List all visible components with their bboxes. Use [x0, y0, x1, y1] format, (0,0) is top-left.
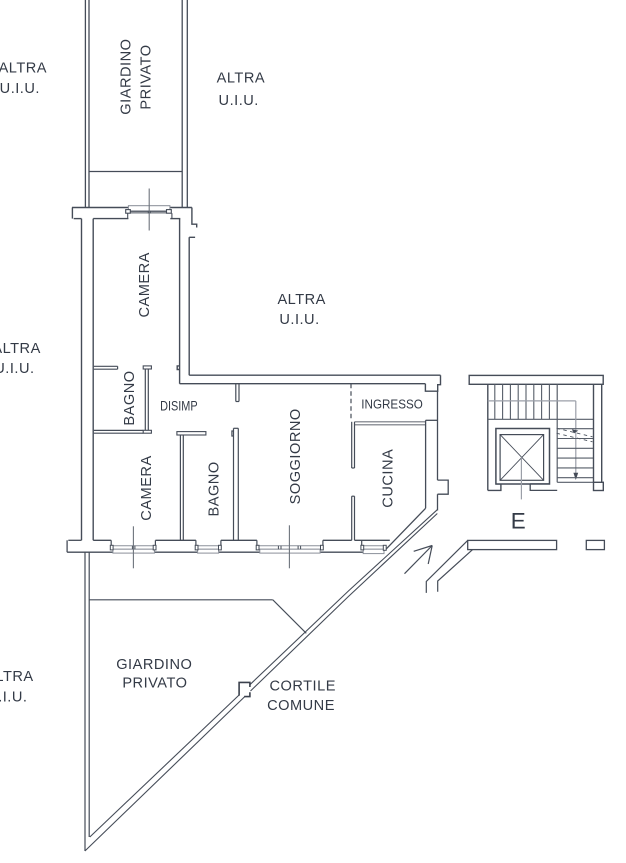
- svg-text:U.I.U.: U.I.U.: [279, 312, 319, 328]
- svg-text:INGRESSO: INGRESSO: [361, 398, 423, 412]
- svg-text:DISIMP: DISIMP: [160, 397, 198, 413]
- svg-text:GIARDINO: GIARDINO: [116, 657, 192, 673]
- svg-text:E: E: [511, 509, 526, 534]
- svg-text:ALTRA: ALTRA: [0, 60, 47, 76]
- svg-text:CORTILE: CORTILE: [269, 679, 336, 695]
- svg-text:CUCINA: CUCINA: [381, 449, 397, 508]
- svg-text:U.I.U.: U.I.U.: [0, 690, 27, 706]
- svg-text:U.I.U.: U.I.U.: [0, 81, 40, 97]
- svg-text:PRIVATO: PRIVATO: [122, 676, 187, 692]
- svg-text:BAGNO: BAGNO: [122, 370, 138, 425]
- svg-text:ALTRA: ALTRA: [277, 292, 325, 308]
- svg-text:PRIVATO: PRIVATO: [139, 44, 155, 109]
- svg-text:U.I.U.: U.I.U.: [0, 361, 35, 377]
- svg-text:U.I.U.: U.I.U.: [219, 93, 259, 109]
- svg-text:BAGNO: BAGNO: [206, 461, 222, 516]
- svg-text:SOGGIORNO: SOGGIORNO: [288, 408, 304, 504]
- svg-text:CAMERA: CAMERA: [139, 455, 155, 520]
- svg-text:ALTRA: ALTRA: [0, 669, 34, 685]
- svg-text:COMUNE: COMUNE: [267, 698, 335, 714]
- svg-text:ALTRA: ALTRA: [0, 341, 41, 357]
- svg-text:ALTRA: ALTRA: [217, 71, 265, 87]
- svg-text:GIARDINO: GIARDINO: [119, 39, 135, 115]
- svg-text:CAMERA: CAMERA: [137, 252, 153, 317]
